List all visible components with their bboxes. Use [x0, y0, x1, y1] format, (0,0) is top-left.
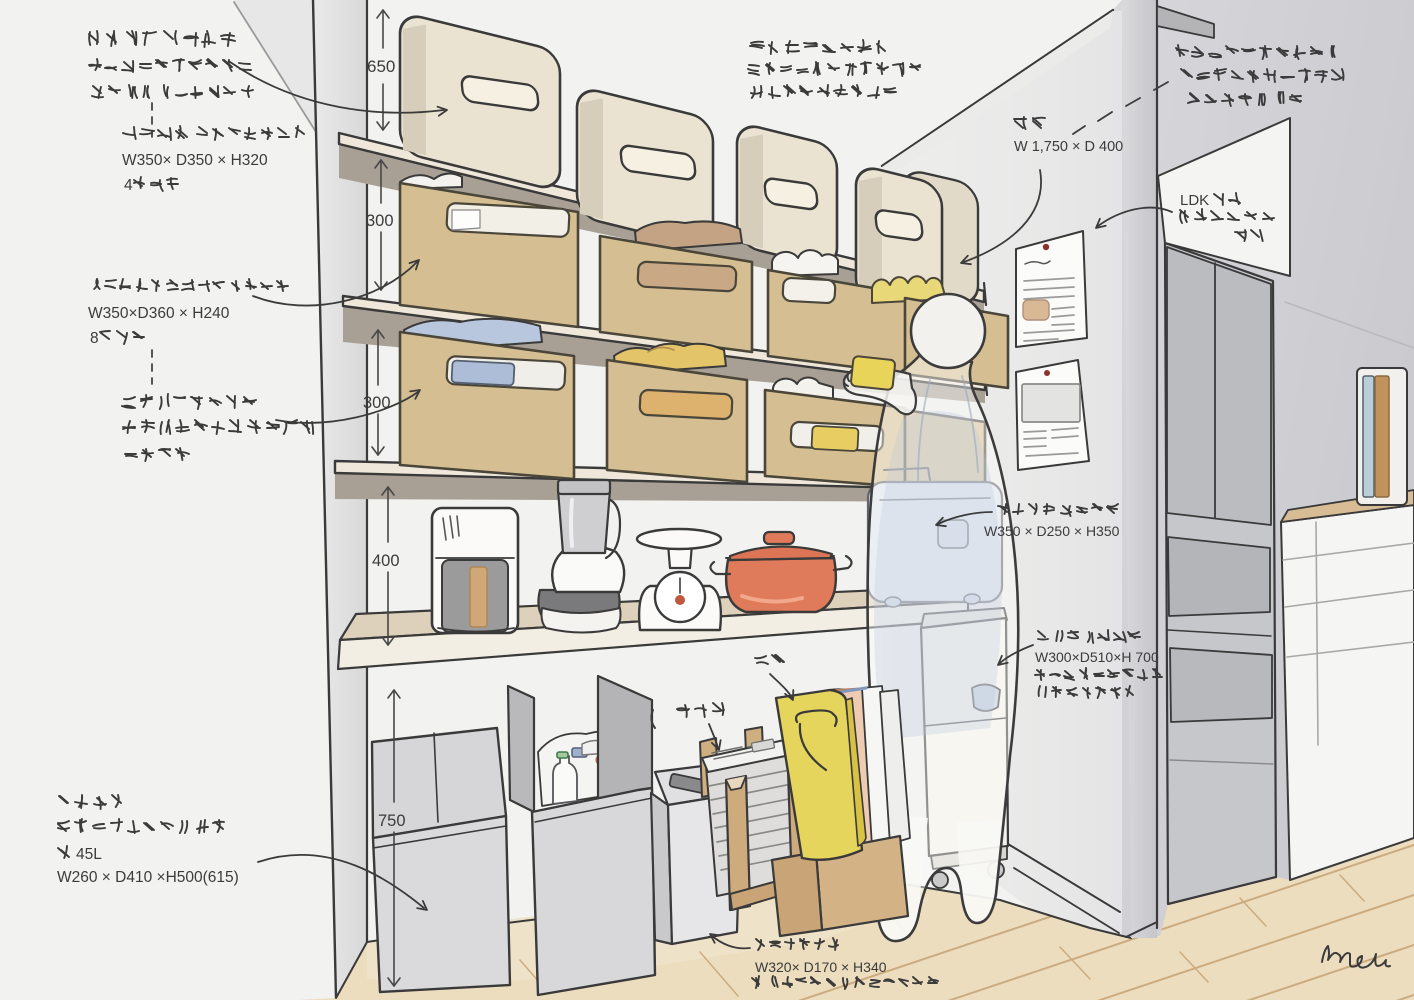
- svg-text:W300×D510×H 700: W300×D510×H 700: [1035, 649, 1159, 665]
- svg-text:400: 400: [372, 552, 400, 570]
- svg-text:4: 4: [124, 177, 133, 194]
- svg-text:W260 × D410 ×H500(615): W260 × D410 ×H500(615): [57, 869, 239, 886]
- svg-text:650: 650: [367, 57, 395, 76]
- svg-text:W350×D360 × H240: W350×D360 × H240: [88, 305, 230, 322]
- svg-text:8: 8: [90, 330, 99, 347]
- svg-text:45L: 45L: [76, 846, 102, 863]
- svg-text:300: 300: [366, 212, 394, 230]
- svg-text:750: 750: [378, 812, 406, 830]
- svg-text:W350× D350 × H320: W350× D350 × H320: [122, 152, 268, 169]
- svg-text:W 1,750 × D 400: W 1,750 × D 400: [1014, 139, 1123, 155]
- svg-text:LDK: LDK: [1180, 192, 1209, 209]
- svg-text:W350 × D250 × H350: W350 × D250 × H350: [984, 523, 1120, 539]
- svg-text:W320× D170 × H340: W320× D170 × H340: [755, 959, 887, 975]
